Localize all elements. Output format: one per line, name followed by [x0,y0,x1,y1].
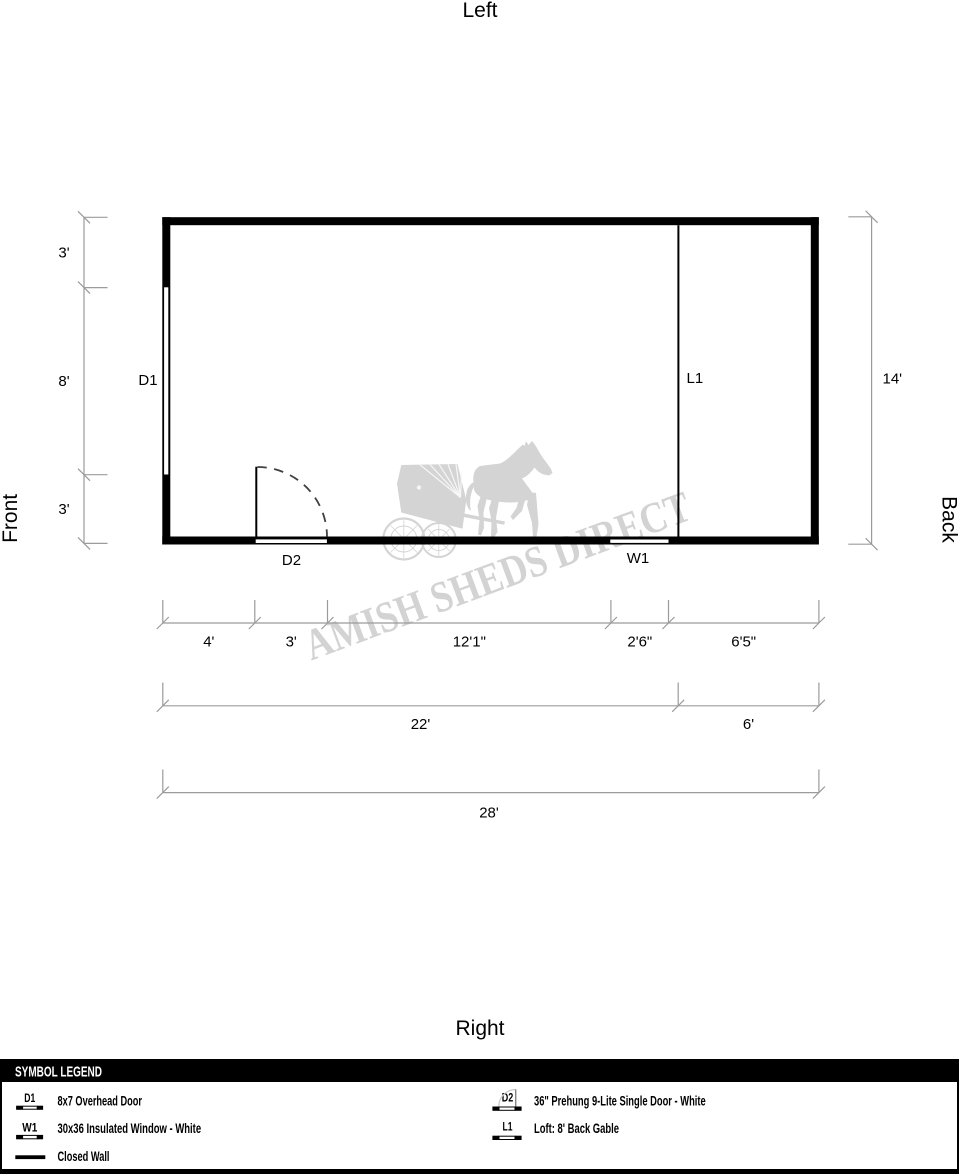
svg-text:3': 3' [58,245,69,262]
svg-text:2'6": 2'6" [627,634,652,651]
svg-text:D2: D2 [502,1090,514,1104]
svg-text:Loft: 8' Back Gable: Loft: 8' Back Gable [534,1121,619,1136]
svg-text:Right: Right [455,1017,504,1040]
svg-text:L1: L1 [503,1120,513,1134]
svg-text:D1: D1 [24,1091,35,1105]
svg-text:Front: Front [0,494,22,543]
svg-text:Left: Left [462,0,497,22]
svg-text:D1: D1 [138,372,157,389]
svg-text:8x7 Overhead Door: 8x7 Overhead Door [58,1094,143,1109]
svg-text:30x36 Insulated Window - White: 30x36 Insulated Window - White [58,1121,202,1136]
svg-text:L1: L1 [687,370,704,387]
svg-text:D2: D2 [282,552,301,569]
svg-text:4': 4' [203,634,214,651]
svg-text:Closed Wall: Closed Wall [58,1149,110,1164]
svg-text:Back: Back [938,496,959,543]
svg-text:W1: W1 [22,1120,37,1134]
svg-text:6': 6' [743,716,754,733]
svg-text:28': 28' [479,805,499,822]
svg-text:12'1": 12'1" [453,634,486,651]
svg-text:W1: W1 [627,550,650,567]
svg-text:3': 3' [58,501,69,518]
svg-text:3': 3' [286,634,297,651]
svg-text:36" Prehung 9-Lite Single Door: 36" Prehung 9-Lite Single Door - White [534,1093,706,1108]
svg-text:14': 14' [883,371,903,388]
svg-text:22': 22' [411,716,431,733]
svg-text:SYMBOL LEGEND: SYMBOL LEGEND [15,1064,102,1081]
svg-text:6'5": 6'5" [731,634,756,651]
svg-text:8': 8' [58,373,69,390]
